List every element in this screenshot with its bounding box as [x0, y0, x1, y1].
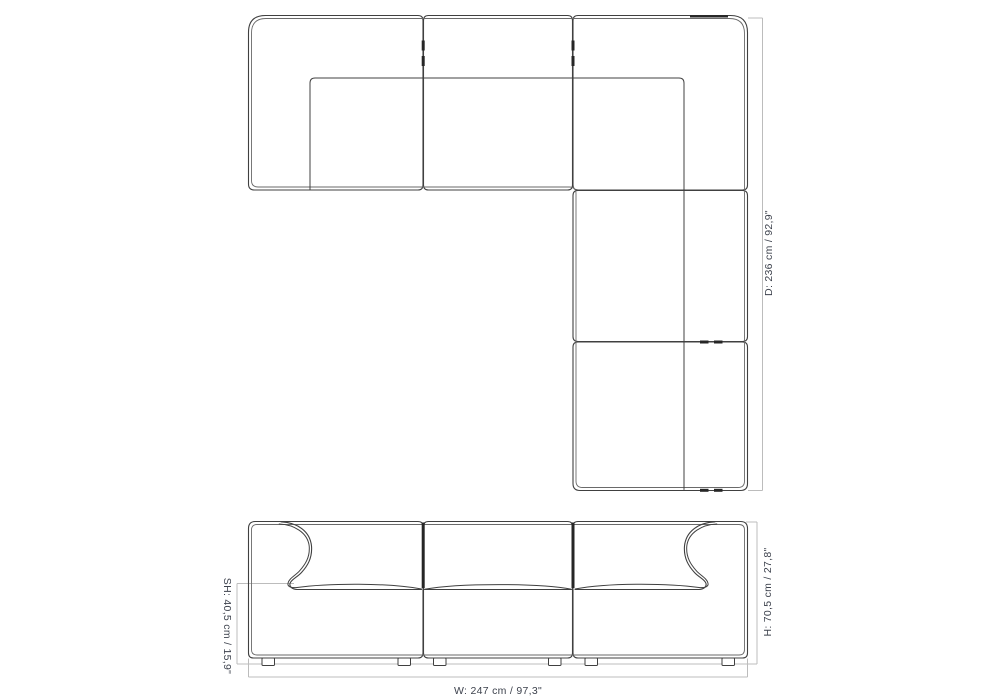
front-view: SH: 40,5 cm / 15,9" H: 70,5 cm / 27,8" W…	[221, 522, 774, 698]
plan-seat-inner-line	[310, 78, 684, 490]
front-connector-marks	[423, 523, 573, 589]
plan-module-corner-right	[573, 16, 748, 191]
plan-module-right-bottom	[573, 342, 748, 491]
plan-module-right-mid	[573, 191, 748, 342]
right-arm-curve-inner	[575, 524, 717, 589]
leg	[262, 658, 275, 666]
leg	[722, 658, 735, 666]
width-dimension-label: W: 247 cm / 97,3"	[454, 685, 542, 697]
plan-module-corner-left	[249, 16, 424, 191]
sofa-dimension-drawing: D: 236 cm / 92,9"	[0, 0, 1000, 700]
top-view: D: 236 cm / 92,9"	[249, 16, 776, 491]
leg	[434, 658, 447, 666]
plan-inner-silhouette	[252, 19, 745, 488]
plan-module-middle	[424, 16, 573, 191]
leg	[549, 658, 562, 666]
height-dimension-label: H: 70,5 cm / 27,8"	[762, 547, 774, 636]
middle-seat-cushion-arc	[425, 585, 572, 590]
technical-drawing-canvas: D: 236 cm / 92,9"	[0, 0, 1000, 700]
leg	[585, 658, 598, 666]
leg	[398, 658, 411, 666]
left-arm-curve-inner	[279, 524, 421, 589]
width-dimension-line	[249, 659, 748, 678]
depth-dimension-label: D: 236 cm / 92,9"	[763, 210, 775, 296]
depth-dimension-line	[748, 18, 763, 491]
seat-height-dimension-label: SH: 40,5 cm / 15,9"	[221, 578, 233, 674]
seat-height-dimension-line	[237, 584, 757, 665]
